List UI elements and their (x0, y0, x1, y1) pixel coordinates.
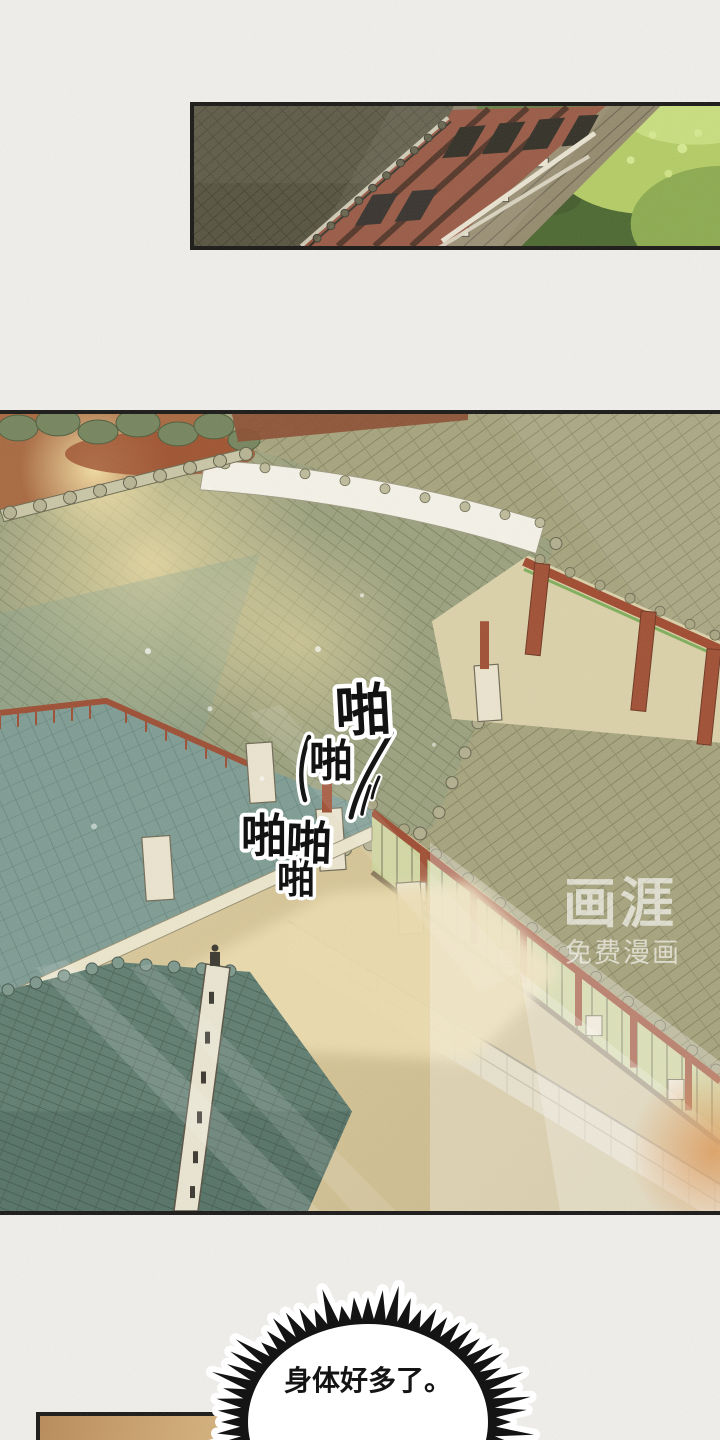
speech-bubble-text: 身体好多了。 (284, 1364, 452, 1397)
comic-page: 画涯 免费漫画 啪 啪 啪 啪 啪 身体好多了。 (0, 0, 720, 1440)
panel-main-art (0, 414, 720, 1211)
panel-main (0, 410, 720, 1215)
panel-top-art (194, 106, 720, 246)
panel-bottom (36, 1412, 492, 1440)
panel-top (190, 102, 720, 250)
